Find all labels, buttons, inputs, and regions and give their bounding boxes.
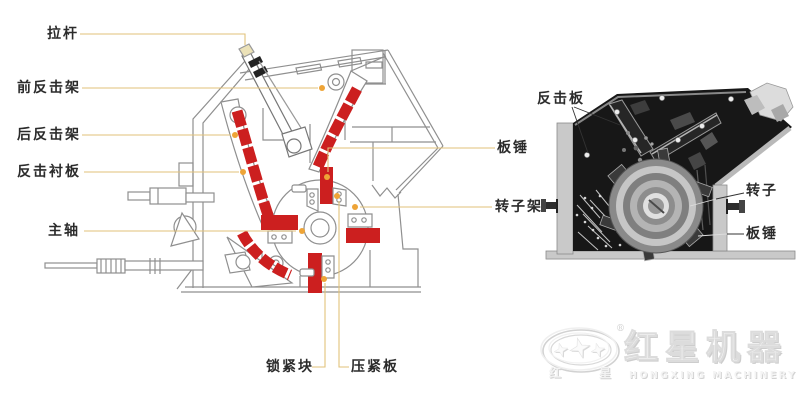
- label-tie-rod: 拉杆: [47, 27, 79, 41]
- photo-base: [546, 251, 795, 259]
- label-blow-bar: 板锤: [497, 141, 529, 155]
- label-rotor: 转子: [746, 184, 778, 198]
- brand-logo-graphic: ®: [541, 324, 625, 372]
- label-impact-liner-plate: 反击衬板: [17, 165, 81, 179]
- logo-seal-char-left: 红: [549, 367, 561, 379]
- logo-brand-en: HONGXING MACHINERY: [629, 371, 797, 381]
- label-impact-plate: 反击板: [537, 92, 585, 106]
- label-pressing-plate: 压紧板: [351, 360, 399, 374]
- photo-right-wall: [713, 185, 727, 251]
- label-blow-bar-photo: 板锤: [746, 227, 778, 241]
- photo-left-wall: [557, 123, 573, 254]
- label-rotor-frame: 转子架: [495, 200, 543, 214]
- logo-brand-zh: 红星机器: [624, 330, 788, 366]
- label-rear-impact-frame: 后反击架: [17, 128, 81, 142]
- label-front-impact-frame: 前反击架: [17, 81, 81, 95]
- left-schematic: [45, 44, 443, 293]
- label-locking-block: 锁紧块: [266, 360, 314, 374]
- logo-seal-char-right: 星: [599, 367, 611, 379]
- label-main-shaft: 主轴: [48, 224, 80, 238]
- impact-crusher-figure: ® 拉杆 前反击架 后反击架 反击衬板 主轴 板锤 转子架 锁紧块 压紧板 反击…: [0, 0, 800, 400]
